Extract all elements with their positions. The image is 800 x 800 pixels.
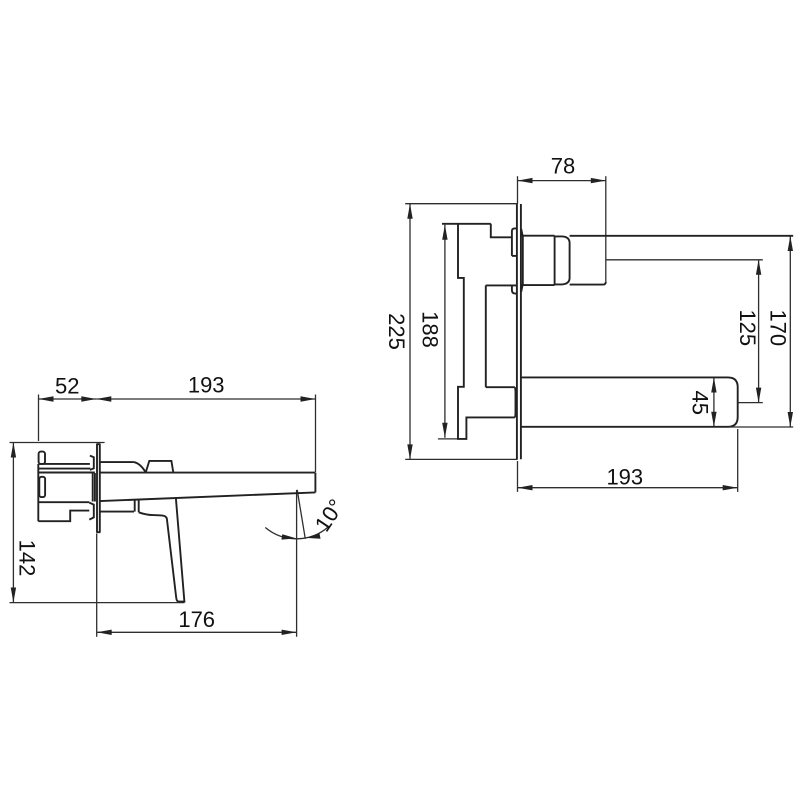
svg-text:188: 188: [418, 311, 443, 348]
svg-text:170: 170: [766, 309, 791, 346]
svg-text:52: 52: [55, 374, 79, 399]
svg-text:125: 125: [735, 309, 760, 346]
svg-text:193: 193: [606, 464, 643, 489]
svg-text:142: 142: [15, 540, 40, 577]
svg-text:78: 78: [551, 154, 575, 179]
svg-text:45: 45: [688, 390, 713, 414]
svg-text:225: 225: [384, 313, 409, 350]
svg-text:176: 176: [178, 607, 215, 632]
svg-text:193: 193: [188, 373, 225, 398]
